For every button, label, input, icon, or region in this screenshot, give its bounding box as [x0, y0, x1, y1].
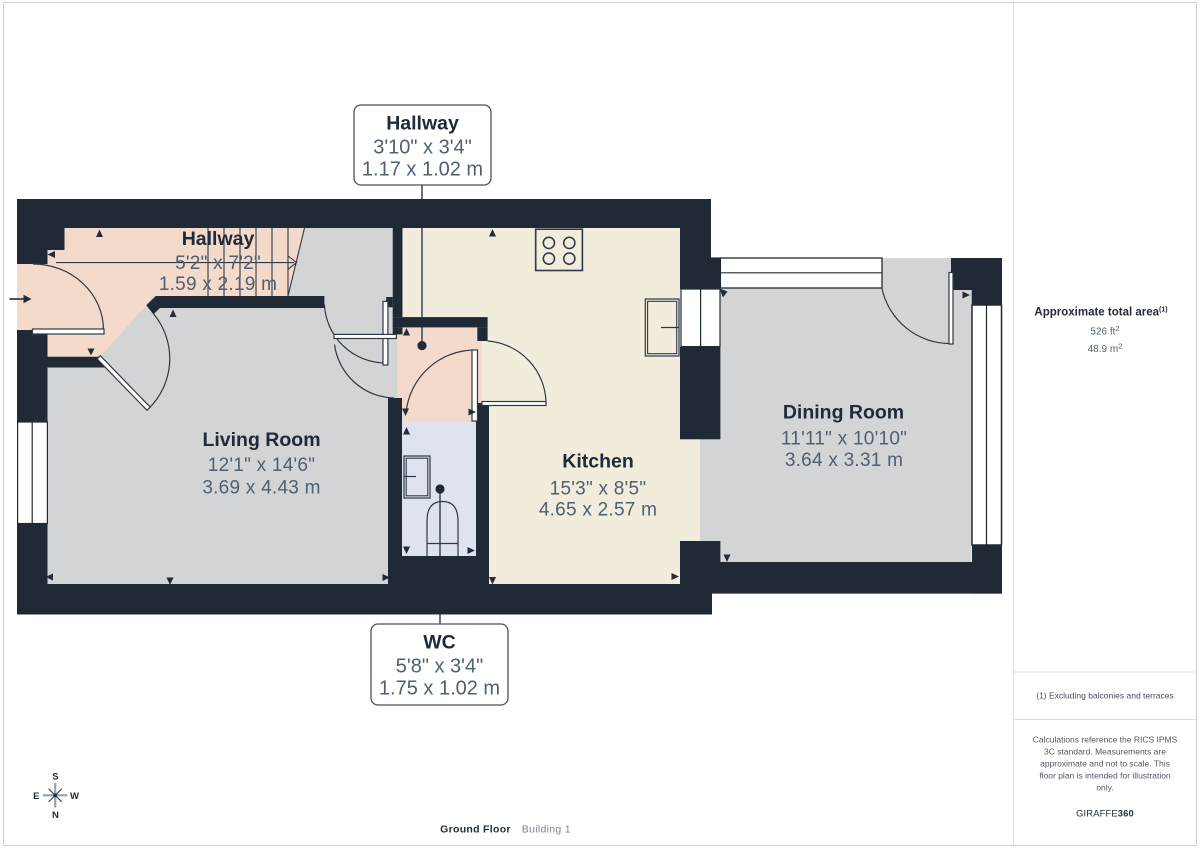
svg-text:Dining Room: Dining Room	[783, 402, 904, 424]
svg-text:Ground Floor: Ground Floor	[440, 823, 511, 835]
svg-text:N: N	[52, 810, 59, 821]
svg-text:Kitchen: Kitchen	[562, 451, 634, 473]
svg-text:Building 1: Building 1	[522, 823, 571, 835]
svg-text:526 ft2: 526 ft2	[1090, 324, 1119, 338]
svg-text:GIRAFFE360: GIRAFFE360	[1076, 809, 1134, 819]
svg-text:3C standard. Measurements are: 3C standard. Measurements are	[1044, 747, 1166, 757]
svg-text:only.: only.	[1096, 783, 1113, 793]
svg-text:Calculations reference the RIC: Calculations reference the RICS IPMS	[1033, 735, 1178, 745]
svg-text:(1) Excluding balconies and te: (1) Excluding balconies and terraces	[1036, 691, 1174, 701]
svg-text:Hallway: Hallway	[182, 228, 255, 250]
svg-text:15'3" x 8'5": 15'3" x 8'5"	[550, 478, 647, 499]
svg-text:approximate and not to scale.: approximate and not to scale. This	[1040, 759, 1170, 769]
svg-text:floor plan is intended for ill: floor plan is intended for illustration	[1039, 771, 1171, 781]
svg-text:48.9 m2: 48.9 m2	[1088, 342, 1123, 356]
svg-text:Hallway: Hallway	[386, 113, 459, 135]
svg-text:Living Room: Living Room	[202, 429, 320, 451]
svg-text:E: E	[33, 791, 39, 802]
svg-text:11'11" x 10'10": 11'11" x 10'10"	[781, 428, 907, 449]
svg-text:5'8" x 3'4": 5'8" x 3'4"	[396, 656, 483, 678]
svg-text:3.64 x 3.31 m: 3.64 x 3.31 m	[785, 450, 903, 471]
svg-text:1.59 x 2.19 m: 1.59 x 2.19 m	[159, 274, 277, 295]
svg-text:3.69 x 4.43 m: 3.69 x 4.43 m	[202, 477, 320, 498]
svg-text:WC: WC	[423, 632, 456, 654]
svg-text:4.65 x 2.57 m: 4.65 x 2.57 m	[539, 499, 657, 520]
svg-text:W: W	[70, 791, 79, 802]
svg-text:1.17 x 1.02 m: 1.17 x 1.02 m	[362, 159, 483, 181]
svg-text:12'1" x 14'6": 12'1" x 14'6"	[208, 455, 315, 476]
svg-text:Approximate total area(1): Approximate total area(1)	[1034, 307, 1167, 319]
svg-text:S: S	[52, 772, 58, 783]
svg-text:1.75 x 1.02 m: 1.75 x 1.02 m	[379, 678, 500, 700]
svg-text:3'10" x 3'4": 3'10" x 3'4"	[373, 137, 472, 159]
svg-text:5'2" x 7'2": 5'2" x 7'2"	[175, 253, 261, 274]
